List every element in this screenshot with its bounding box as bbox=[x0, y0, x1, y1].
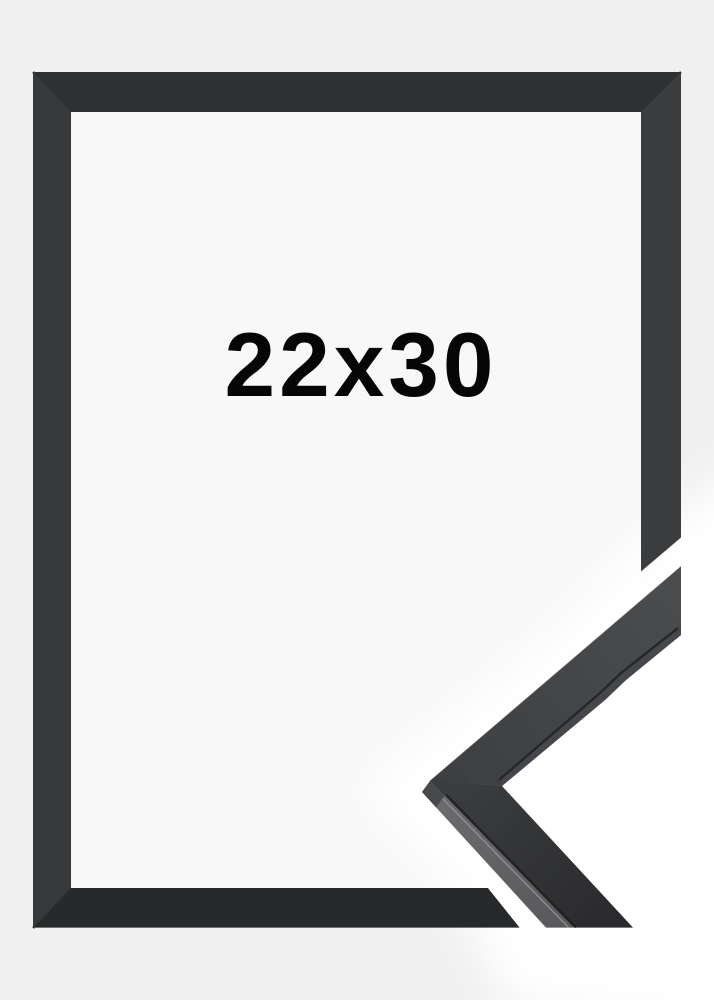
svg-text:22x30: 22x30 bbox=[224, 315, 497, 416]
